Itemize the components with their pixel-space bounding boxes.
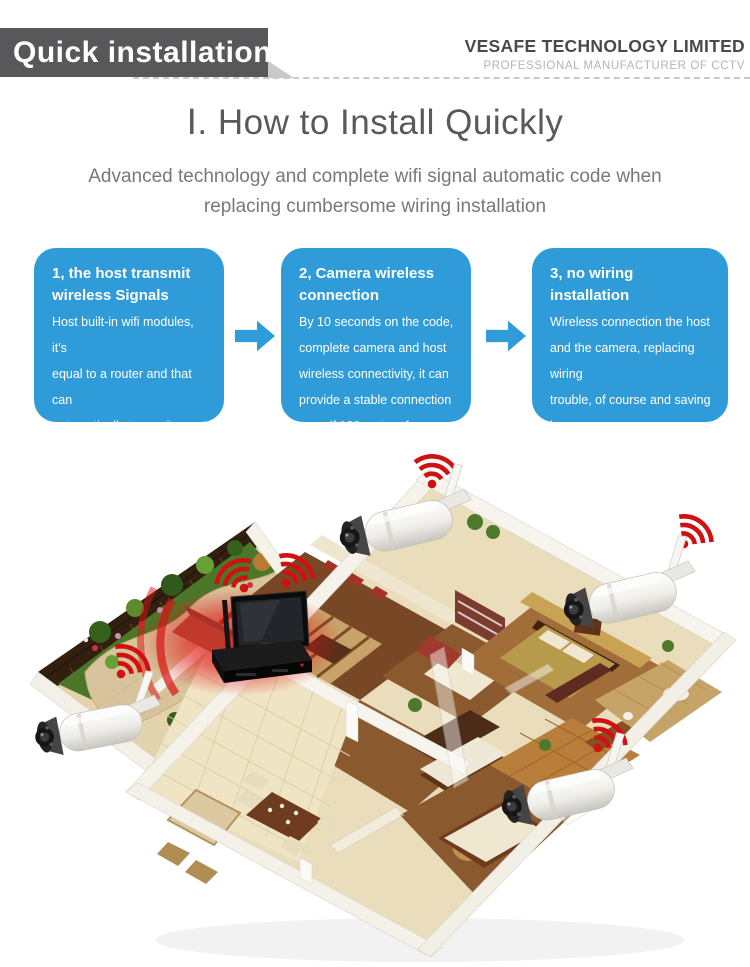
banner-fold-decoration [268, 61, 294, 78]
page: Quick installation VESAFE TECHNOLOGY LIM… [0, 0, 750, 967]
page-subtitle: Advanced technology and complete wifi si… [0, 162, 750, 223]
step-card-1: 1, the host transmit wireless Signals Ho… [34, 248, 224, 422]
house-illustration [0, 432, 750, 967]
company-tagline: PROFESSIONAL MANUFACTURER OF CCTV [465, 60, 745, 72]
step-2-title: 2, Camera wireless connection [299, 263, 459, 309]
wifi-signal-icon [665, 510, 717, 560]
right-arrow-icon [235, 319, 275, 353]
banner-label: Quick installation [13, 36, 272, 69]
company-block: VESAFE TECHNOLOGY LIMITED PROFESSIONAL M… [465, 36, 745, 72]
right-arrow-icon [486, 319, 526, 353]
company-name: VESAFE TECHNOLOGY LIMITED [465, 36, 745, 57]
step-1-title: 1, the host transmit wireless Signals [52, 263, 212, 309]
step-card-3: 3, no wiring installation Wireless conne… [532, 248, 728, 422]
header-divider [133, 77, 750, 79]
floor-plan [126, 470, 736, 957]
banner: Quick installation [0, 28, 268, 77]
page-title: Ⅰ. How to Install Quickly [0, 103, 750, 143]
step-2-body: By 10 seconds on the code, complete came… [299, 309, 459, 439]
step-3-title: 3, no wiring installation [550, 263, 716, 309]
step-card-2: 2, Camera wireless connection By 10 seco… [281, 248, 471, 422]
